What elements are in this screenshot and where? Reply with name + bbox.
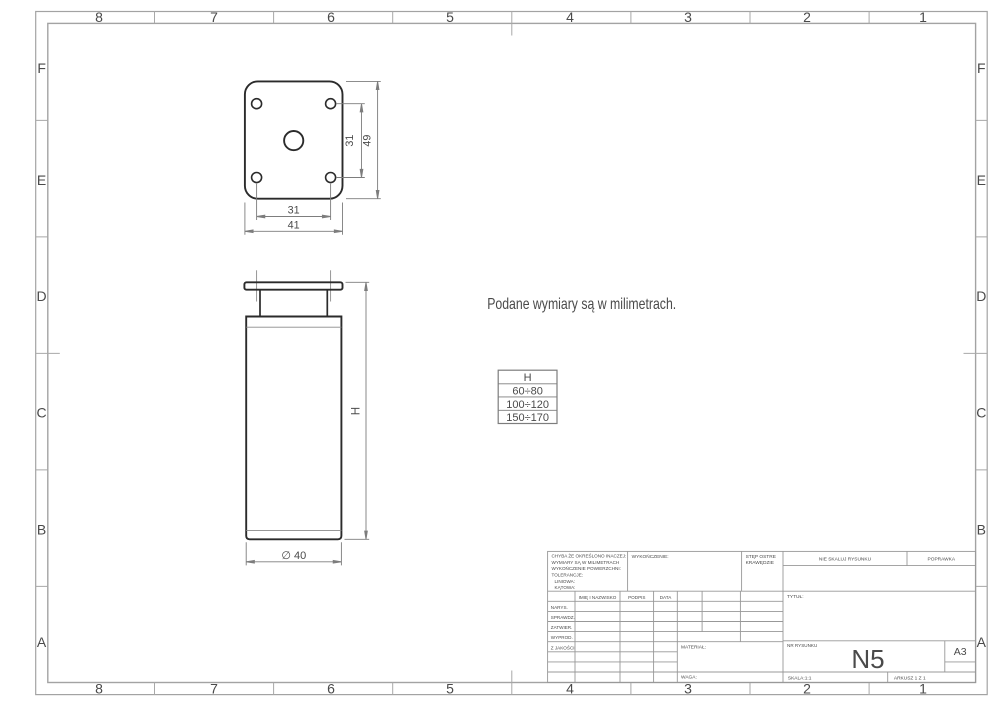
svg-text:KRAWĘDZIE: KRAWĘDZIE [746,560,774,566]
svg-text:∅ 40: ∅ 40 [281,550,306,562]
svg-text:NARYS.: NARYS. [551,605,568,610]
svg-text:5: 5 [446,9,454,25]
svg-text:D: D [37,288,47,304]
svg-text:KĄTOWA:: KĄTOWA: [555,585,576,590]
svg-text:60÷80: 60÷80 [512,385,543,397]
svg-text:49: 49 [361,135,373,147]
svg-text:WAGA:: WAGA: [681,675,697,681]
svg-text:7: 7 [210,681,218,697]
svg-text:CHYBA ŻE OKREŚLONO INACZEJ:: CHYBA ŻE OKREŚLONO INACZEJ: [552,552,627,559]
svg-text:7: 7 [210,9,218,25]
svg-text:6: 6 [327,681,335,697]
svg-text:Z JAKOŚCI: Z JAKOŚCI [551,643,575,650]
svg-text:WYKOŃCZENIE POWIERZCHNI:: WYKOŃCZENIE POWIERZCHNI: [552,565,621,571]
svg-text:NIE SKALUJ RYSUNKU: NIE SKALUJ RYSUNKU [819,557,872,563]
svg-text:8: 8 [95,9,103,25]
svg-text:F: F [977,60,986,76]
svg-text:6: 6 [327,9,335,25]
svg-text:B: B [977,522,986,538]
svg-text:DATA: DATA [660,595,673,600]
svg-text:STĘP OSTRE: STĘP OSTRE [746,554,776,560]
svg-text:H: H [524,372,532,384]
svg-text:H: H [350,407,363,415]
svg-text:3: 3 [684,9,692,25]
svg-text:41: 41 [288,219,300,231]
svg-text:2: 2 [803,9,811,25]
svg-text:B: B [37,522,46,538]
svg-text:A: A [37,634,47,650]
svg-text:PODPIS: PODPIS [628,595,645,600]
svg-text:A3: A3 [954,646,967,658]
svg-text:C: C [976,405,986,421]
svg-text:ZATWIER.: ZATWIER. [551,625,573,630]
svg-text:POPRAWKA: POPRAWKA [928,557,956,563]
svg-text:LINIOWA:: LINIOWA: [555,579,576,584]
svg-text:31: 31 [344,135,356,147]
svg-text:Podane wymiary są w milimetrac: Podane wymiary są w milimetrach. [487,296,676,313]
svg-text:E: E [977,172,986,188]
svg-text:IMIĘ I NAZWISKO: IMIĘ I NAZWISKO [579,595,617,600]
svg-text:8: 8 [95,681,103,697]
svg-text:1: 1 [919,9,927,25]
svg-text:TOLERANCJE:: TOLERANCJE: [552,573,584,578]
svg-text:SPRAWDZ.: SPRAWDZ. [551,615,575,620]
svg-text:N5: N5 [851,644,884,674]
svg-text:5: 5 [446,681,454,697]
svg-text:WYMIARY SĄ W MILIMETRACH: WYMIARY SĄ W MILIMETRACH [552,560,620,565]
svg-text:31: 31 [288,204,300,216]
svg-text:F: F [37,60,46,76]
svg-text:WYKOŃCZENIE:: WYKOŃCZENIE: [632,553,669,560]
svg-text:MATERIAŁ:: MATERIAŁ: [681,645,706,651]
svg-text:WYPROD.: WYPROD. [551,635,573,640]
svg-text:NR RYSUNKU: NR RYSUNKU [787,643,817,648]
svg-text:4: 4 [566,9,574,25]
svg-text:A: A [977,634,987,650]
svg-text:ARKUSZ 1 Z 1: ARKUSZ 1 Z 1 [894,676,926,682]
svg-text:100÷120: 100÷120 [506,399,549,411]
svg-text:SKALA:1:1: SKALA:1:1 [788,676,812,682]
svg-text:150÷170: 150÷170 [506,412,549,424]
svg-text:E: E [37,172,46,188]
svg-text:D: D [976,288,986,304]
svg-text:C: C [37,405,47,421]
svg-text:TYTUŁ:: TYTUŁ: [787,594,804,600]
